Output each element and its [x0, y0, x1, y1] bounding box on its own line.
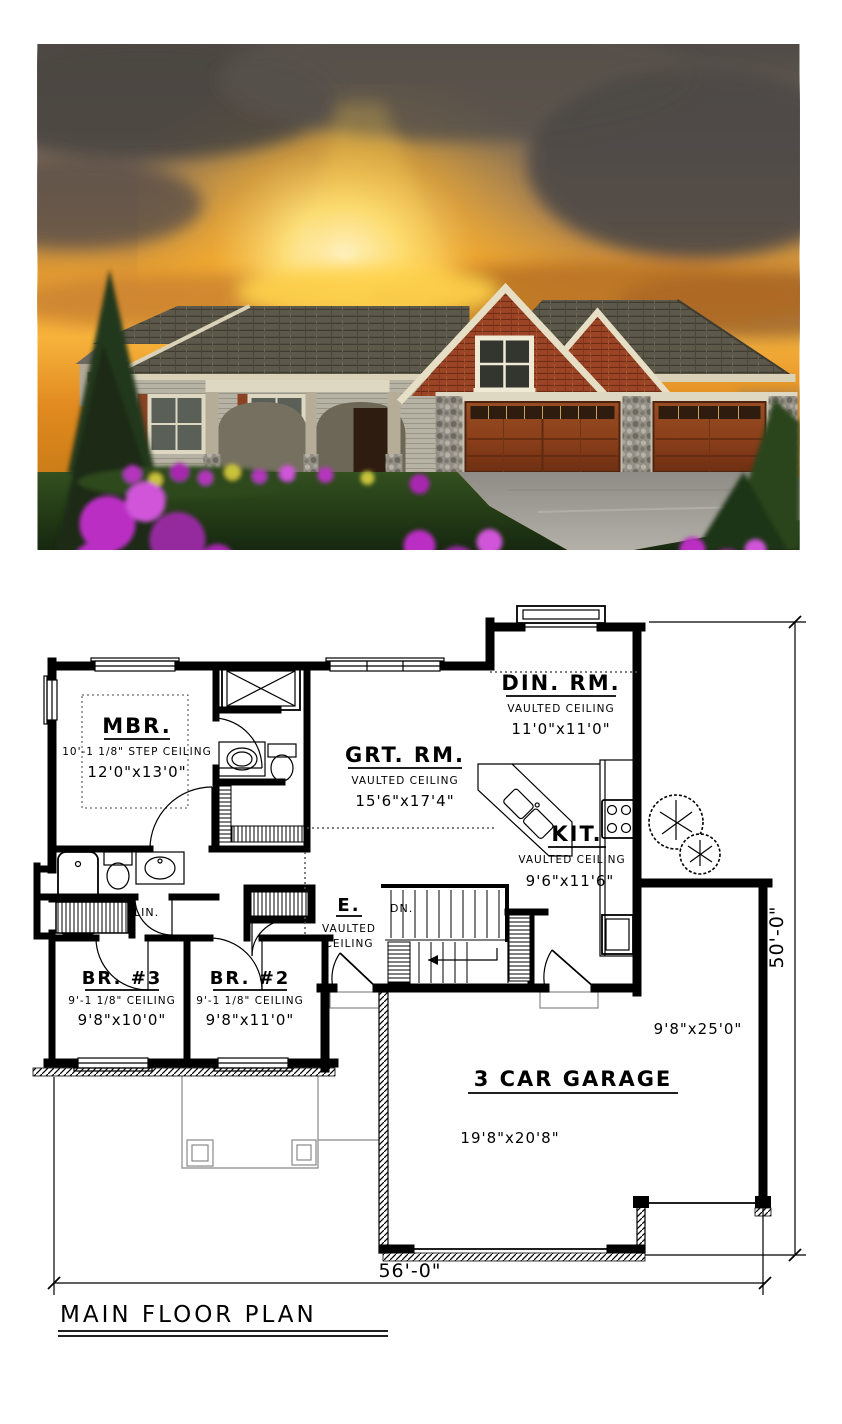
room-label-entry: E. VAULTED CEILING — [322, 895, 376, 950]
window-grt-north — [326, 658, 444, 671]
room-label-br3: BR. #3 9'-1 1/8" CEILING 9'8"x10'0" — [68, 968, 175, 1029]
hall-toilet — [104, 852, 132, 889]
house — [93, 288, 798, 472]
garage-front — [436, 392, 798, 472]
svg-text:BR. #2: BR. #2 — [210, 968, 291, 989]
front-door — [354, 408, 388, 472]
garage-door-single — [654, 402, 766, 472]
svg-text:VAULTED CEILING: VAULTED CEILING — [351, 775, 458, 787]
svg-text:VAULTED CEILING: VAULTED CEILING — [507, 703, 614, 715]
svg-text:11'0"x11'0": 11'0"x11'0" — [511, 720, 610, 738]
garage-west-wall — [379, 992, 388, 1253]
svg-text:3 CAR GARAGE: 3 CAR GARAGE — [474, 1067, 673, 1091]
house-photo — [37, 44, 800, 550]
room-label-din: DIN. RM. VAULTED CEILING 11'0"x11'0" — [501, 671, 620, 738]
door-garage — [544, 950, 595, 988]
svg-text:CEILING: CEILING — [325, 938, 374, 950]
svg-text:12'0"x13'0": 12'0"x13'0" — [87, 763, 186, 781]
room-label-mbr: MBR. 10'-1 1/8" STEP CEILING 12'0"x13'0" — [62, 714, 212, 781]
door-master-bath — [216, 718, 262, 768]
svg-text:9'8"x11'0": 9'8"x11'0" — [206, 1011, 295, 1029]
porch-column — [297, 1145, 311, 1160]
bay-window-dining — [517, 606, 605, 627]
stairs-label: DN. — [390, 902, 413, 915]
stove — [602, 800, 634, 838]
svg-text:10'-1 1/8" STEP CEILING: 10'-1 1/8" STEP CEILING — [62, 746, 212, 758]
shower — [222, 667, 300, 710]
svg-text:9'-1 1/8" CEILING: 9'-1 1/8" CEILING — [68, 995, 175, 1007]
svg-text:VAULTED: VAULTED — [322, 923, 376, 935]
stone-pillar — [436, 396, 463, 472]
svg-text:E.: E. — [337, 895, 360, 916]
room-label-garage: 3 CAR GARAGE 19'8"x20'8" 9'8"x25'0" — [460, 1020, 742, 1147]
front-window-left — [138, 394, 216, 454]
pantry — [509, 915, 530, 981]
garage-door-double — [466, 402, 620, 472]
svg-text:9'8"x10'0": 9'8"x10'0" — [78, 1011, 167, 1029]
svg-text:15'6"x17'4": 15'6"x17'4" — [355, 792, 454, 810]
window-mbr-west — [44, 676, 57, 724]
left-house-body — [108, 380, 438, 472]
page: 50'-0" 56'-0" MBR. 10'-1 1/8" STEP CEILI… — [0, 0, 842, 1424]
linen-closet — [56, 902, 128, 933]
front-stoop — [330, 992, 385, 1008]
dimension-depth: 50'-0" — [645, 616, 806, 1261]
window-mbr-north — [91, 658, 179, 671]
gable-window — [474, 338, 536, 394]
kitchen-sink — [503, 784, 558, 839]
svg-text:BR. #3: BR. #3 — [82, 968, 163, 989]
porch-column — [192, 1145, 208, 1161]
svg-text:19'8"x20'8": 19'8"x20'8" — [460, 1129, 559, 1147]
porch-beam — [206, 380, 390, 392]
floor-plan: 50'-0" 56'-0" MBR. 10'-1 1/8" STEP CEILI… — [0, 585, 842, 1347]
stone-pillar — [623, 396, 651, 472]
svg-text:9'8"x25'0": 9'8"x25'0" — [654, 1020, 743, 1038]
svg-text:VAULTED CEILING: VAULTED CEILING — [518, 854, 625, 866]
svg-text:DIN. RM.: DIN. RM. — [501, 671, 620, 695]
linen-label: LIN. — [134, 906, 159, 919]
refrigerator — [602, 915, 633, 954]
br2-closet-shelf — [251, 892, 308, 916]
room-label-grt: GRT. RM. VAULTED CEILING 15'6"x17'4" — [345, 743, 465, 810]
svg-text:MBR.: MBR. — [102, 714, 171, 738]
plan-title: MAIN FLOOR PLAN — [58, 1302, 388, 1336]
front-door — [332, 953, 377, 988]
stair-direction-arrow — [428, 955, 438, 965]
svg-text:KIT.: KIT. — [551, 822, 602, 846]
master-closet — [219, 786, 304, 842]
plan-title-text: MAIN FLOOR PLAN — [60, 1302, 317, 1328]
dimension-width: 56'-0" — [48, 1077, 771, 1295]
hall-sink — [136, 852, 184, 884]
width-dimension: 56'-0" — [378, 1260, 441, 1282]
svg-text:9'-1 1/8" CEILING: 9'-1 1/8" CEILING — [196, 995, 303, 1007]
svg-text:GRT. RM.: GRT. RM. — [345, 743, 465, 767]
tree-icon — [649, 795, 720, 874]
garage-stoop — [540, 992, 598, 1008]
room-label-br2: BR. #2 9'-1 1/8" CEILING 9'8"x11'0" — [196, 968, 303, 1029]
master-toilet — [268, 744, 296, 781]
door-mbr — [150, 787, 212, 849]
depth-dimension: 50'-0" — [766, 905, 788, 968]
svg-text:9'6"x11'6": 9'6"x11'6" — [526, 872, 615, 890]
